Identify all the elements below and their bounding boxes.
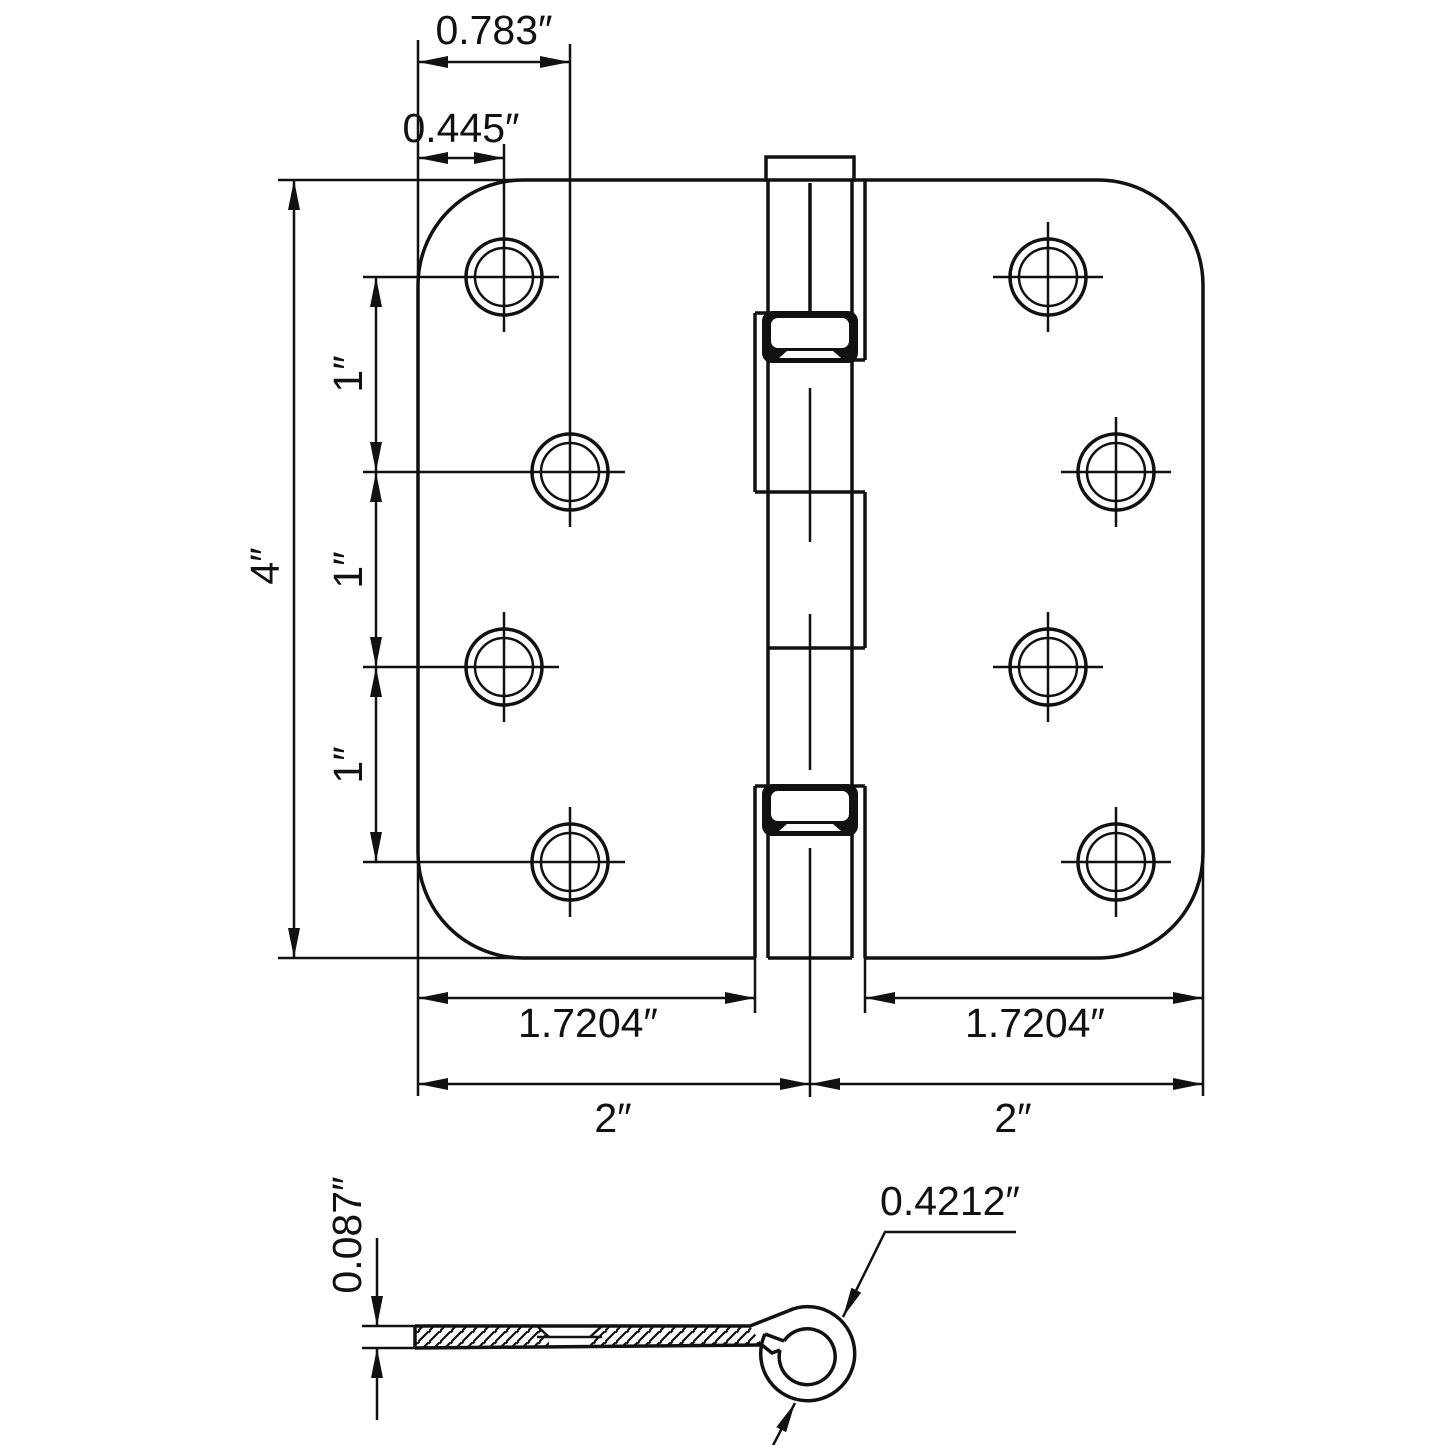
dimension-label: 0.783″	[435, 7, 552, 53]
dimension-leaf-flat-left: 1.7204″	[418, 992, 755, 1046]
dimension-hole-spacings: 1″ 1″ 1″	[325, 277, 382, 862]
dimension-label: 4″	[242, 547, 288, 584]
bottom-leader-arrow	[767, 1403, 795, 1445]
dimension-hole-offset-outer: 0.783″	[418, 7, 570, 68]
leaf-section	[415, 1311, 788, 1348]
dimension-overall-height: 4″	[242, 180, 300, 958]
dimension-hole-offset-inner: 0.445″	[402, 105, 519, 164]
bearing-band-bottom	[762, 784, 858, 836]
dimension-label: 2″	[594, 1095, 631, 1141]
dimension-label: 0.087″	[324, 1176, 370, 1293]
hinge-dimension-drawing: 0.783″ 0.445″ 4″ 1″ 1″ 1″	[0, 0, 1445, 1445]
hinge-barrel	[762, 157, 858, 1097]
dimension-label: 1″	[325, 355, 371, 392]
knuckle-curl	[761, 1307, 855, 1401]
dimension-label: 1.7204″	[965, 1000, 1105, 1046]
screw-holes-right	[993, 222, 1171, 917]
hinge-pin-cap	[766, 157, 854, 180]
dimension-knuckle-diameter: 0.4212″	[843, 1178, 1020, 1317]
dimension-leaf-flat-right: 1.7204″	[865, 992, 1203, 1046]
dimension-leaf-width-right: 2″	[810, 1078, 1203, 1141]
dimension-label: 2″	[994, 1095, 1031, 1141]
bearing-band-top	[762, 311, 858, 363]
dimension-leaf-thickness: 0.087″	[324, 1176, 415, 1420]
dimension-label: 1″	[325, 746, 371, 783]
hinge-drawing-page: 0.783″ 0.445″ 4″ 1″ 1″ 1″	[0, 0, 1445, 1445]
dimension-label: 0.4212″	[880, 1178, 1020, 1224]
hinge-side-view: 0.087″ 0.4212″	[324, 1176, 1020, 1445]
screw-holes-left	[363, 239, 625, 917]
dimension-leaf-width-left: 2″	[418, 1078, 810, 1141]
dimension-label: 1″	[325, 551, 371, 588]
hinge-top-view: 0.783″ 0.445″ 4″ 1″ 1″ 1″	[242, 7, 1203, 1141]
dimension-label: 0.445″	[402, 105, 519, 151]
dimension-label: 1.7204″	[518, 1000, 658, 1046]
